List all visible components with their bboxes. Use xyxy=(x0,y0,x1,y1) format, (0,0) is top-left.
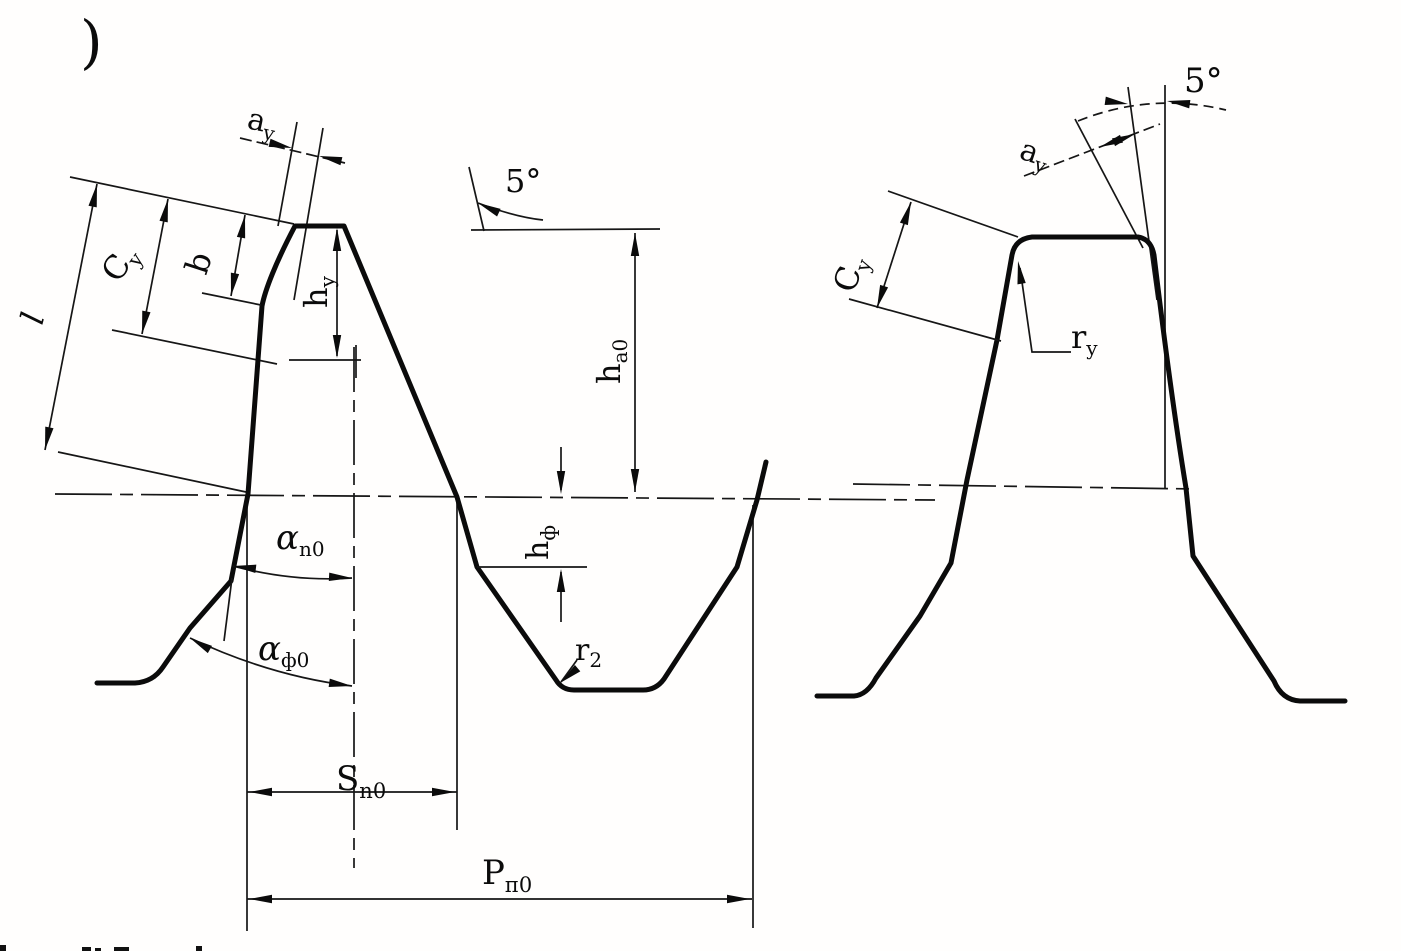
left-view: l Cy b ay xyxy=(13,102,935,931)
label-b: b xyxy=(177,247,219,278)
label-c-y-right: Cy xyxy=(825,250,876,298)
dim-l: l xyxy=(13,183,101,451)
callout-r2: r2 xyxy=(557,633,602,686)
dim-c-y-left: Cy xyxy=(93,198,172,335)
hob-tooth-profile-diagram: l Cy b ay xyxy=(0,0,1401,951)
label-p-n0: Pп0 xyxy=(482,853,532,897)
label-a-y-right: ay xyxy=(1014,132,1054,178)
dim-h-y: hy xyxy=(289,228,361,378)
label-h-a0: hа0 xyxy=(590,339,632,384)
label-r2: r2 xyxy=(575,633,602,672)
label-s-n0: Sn0 xyxy=(336,759,386,803)
dim-a-y-left: ay xyxy=(240,102,345,166)
right-view: 5° ay Cy ry xyxy=(817,61,1345,701)
dim-alpha-n0: αn0 xyxy=(224,518,352,641)
dim-angle5-right: 5° xyxy=(1078,61,1226,121)
callout-r-y: ry xyxy=(1014,260,1098,360)
worn-face-line xyxy=(278,122,297,226)
rake-face-reference-line xyxy=(70,177,294,224)
label-angle5-right: 5° xyxy=(1184,61,1223,101)
dim-b: b xyxy=(177,214,261,305)
label-r-y: ry xyxy=(1071,318,1098,360)
label-h-f: hф xyxy=(521,525,560,560)
dim-p-n0: Pп0 xyxy=(247,853,752,903)
label-alpha-n0: αn0 xyxy=(276,518,325,561)
new-face-line-right xyxy=(1128,87,1157,300)
caption-fragments xyxy=(0,945,202,951)
dim-alpha-f0: αф0 xyxy=(188,629,353,690)
figure-corner-mark: ) xyxy=(80,8,103,76)
regrind-depth-reference-line xyxy=(112,330,277,364)
pitch-line xyxy=(55,494,935,500)
dim-h-a0: hа0 xyxy=(590,233,639,492)
label-angle5-left: 5° xyxy=(505,162,541,200)
label-l: l xyxy=(13,308,52,328)
label-c-y-left: Cy xyxy=(93,237,148,291)
scanned-drawing-page: l Cy b ay xyxy=(0,0,1401,951)
dim-a-y-right: ay xyxy=(1014,124,1160,179)
pitch-level-reference-line xyxy=(58,452,246,492)
label-alpha-f0: αф0 xyxy=(258,629,309,672)
dim-angle5-left: 5° xyxy=(469,162,660,231)
pitch-line-right xyxy=(853,484,1196,489)
label-h-y: hy xyxy=(297,275,339,308)
tooth-profile-right xyxy=(817,237,1345,701)
worn-face-line-right xyxy=(1075,119,1143,248)
tooth-profile-left xyxy=(97,226,766,690)
dim-s-n0: Sn0 xyxy=(247,759,457,803)
dim-c-y-right: Cy xyxy=(825,191,1018,341)
dim-h-f: hф xyxy=(477,447,587,622)
